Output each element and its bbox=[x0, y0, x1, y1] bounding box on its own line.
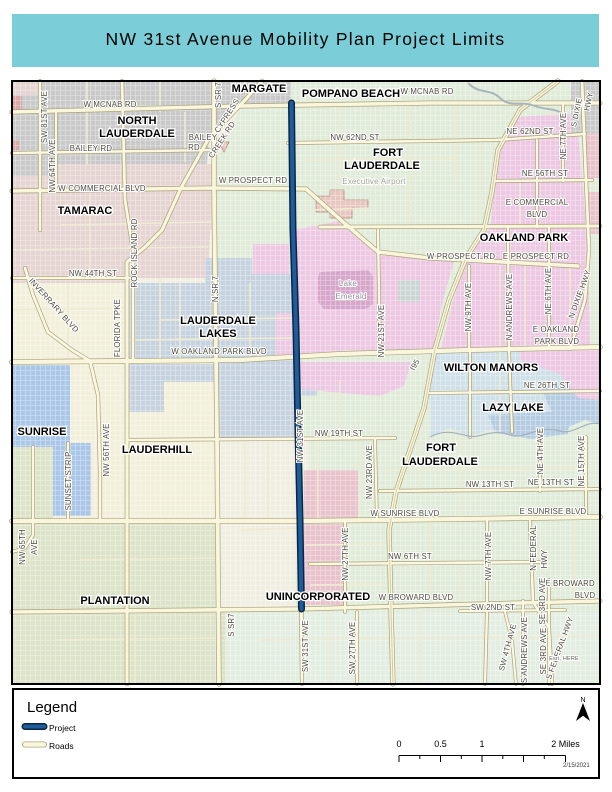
svg-text:NE 6TH AVE: NE 6TH AVE bbox=[544, 268, 553, 315]
svg-text:RD: RD bbox=[188, 143, 200, 152]
svg-text:NW 6TH ST: NW 6TH ST bbox=[388, 552, 432, 561]
svg-text:E OAKLAND: E OAKLAND bbox=[533, 325, 580, 334]
svg-text:NW 21ST AVE: NW 21ST AVE bbox=[377, 305, 386, 358]
svg-text:N FEDERAL: N FEDERAL bbox=[529, 525, 538, 571]
svg-text:NW 7TH AVE: NW 7TH AVE bbox=[484, 532, 493, 581]
svg-text:N ANDREWS AVE: N ANDREWS AVE bbox=[505, 274, 514, 341]
svg-text:0: 0 bbox=[396, 739, 401, 749]
svg-text:NW 56TH AVE: NW 56TH AVE bbox=[102, 423, 111, 476]
svg-text:LAUDERDALE: LAUDERDALE bbox=[99, 128, 175, 140]
svg-text:ROCK ISLAND RD: ROCK ISLAND RD bbox=[130, 218, 139, 287]
svg-text:POMPANO BEACH: POMPANO BEACH bbox=[302, 88, 400, 100]
svg-text:Lake: Lake bbox=[339, 279, 357, 288]
svg-text:E SUNRISE BLVD: E SUNRISE BLVD bbox=[520, 507, 587, 516]
svg-text:E COMMERCIAL: E COMMERCIAL bbox=[506, 198, 569, 207]
svg-text:LAUDERDALE: LAUDERDALE bbox=[402, 456, 478, 468]
svg-text:NW 9TH AVE: NW 9TH AVE bbox=[464, 283, 473, 332]
svg-text:NE 13TH ST: NE 13TH ST bbox=[528, 478, 574, 487]
svg-text:SUNRISE: SUNRISE bbox=[18, 426, 67, 438]
svg-text:N: N bbox=[580, 697, 585, 704]
svg-text:2 Miles: 2 Miles bbox=[551, 739, 580, 749]
svg-text:UNINCORPORATED: UNINCORPORATED bbox=[266, 591, 370, 603]
svg-text:PLANTATION: PLANTATION bbox=[80, 595, 149, 607]
svg-text:AVE: AVE bbox=[30, 539, 39, 555]
svg-text:NW 13TH ST: NW 13TH ST bbox=[466, 480, 514, 489]
svg-text:SW 27TH AVE: SW 27TH AVE bbox=[348, 622, 357, 675]
svg-text:NW 19TH ST: NW 19TH ST bbox=[315, 429, 363, 438]
svg-text:MARGATE: MARGATE bbox=[232, 83, 287, 95]
svg-text:NE 56TH ST: NE 56TH ST bbox=[522, 169, 568, 178]
svg-text:WILTON MANORS: WILTON MANORS bbox=[444, 362, 538, 374]
svg-text:NE 15TH AVE: NE 15TH AVE bbox=[577, 435, 586, 486]
svg-text:W BROWARD BLVD: W BROWARD BLVD bbox=[379, 593, 454, 602]
svg-text:W MCNAB RD: W MCNAB RD bbox=[83, 100, 136, 109]
svg-text:SW 31ST AVE: SW 31ST AVE bbox=[301, 620, 310, 672]
svg-text:S SR 7: S SR 7 bbox=[214, 82, 223, 108]
svg-text:1: 1 bbox=[479, 739, 484, 749]
svg-text:Executive Airport: Executive Airport bbox=[342, 177, 406, 186]
svg-text:HWY: HWY bbox=[540, 549, 549, 568]
svg-text:N SR 7: N SR 7 bbox=[211, 276, 220, 302]
svg-text:W SUNRISE BLVD: W SUNRISE BLVD bbox=[371, 509, 440, 518]
svg-text:OAKLAND PARK: OAKLAND PARK bbox=[480, 232, 568, 244]
svg-text:BLVD: BLVD bbox=[575, 591, 596, 600]
svg-text:SW 81ST AVE: SW 81ST AVE bbox=[40, 91, 49, 143]
svg-text:NW 65TH: NW 65TH bbox=[18, 529, 27, 565]
svg-text:0.5: 0.5 bbox=[434, 739, 447, 749]
svg-text:E BROWARD: E BROWARD bbox=[545, 579, 595, 588]
svg-text:FORT: FORT bbox=[426, 442, 456, 454]
svg-text:LAUDERDALE: LAUDERDALE bbox=[344, 160, 420, 172]
svg-text:NW 31ST AVE: NW 31ST AVE bbox=[296, 410, 305, 463]
svg-text:Esri, HERE: Esri, HERE bbox=[549, 656, 579, 662]
svg-text:W PROSPECT RD: W PROSPECT RD bbox=[219, 176, 287, 185]
svg-text:NW 64TH AVE: NW 64TH AVE bbox=[48, 139, 57, 192]
svg-text:BAILEY RD: BAILEY RD bbox=[70, 144, 113, 153]
svg-text:S SR7: S SR7 bbox=[227, 613, 236, 637]
svg-text:NE 7TH AVE: NE 7TH AVE bbox=[559, 113, 568, 160]
svg-text:E PROSPECT RD: E PROSPECT RD bbox=[503, 252, 569, 261]
svg-text:TAMARAC: TAMARAC bbox=[58, 205, 113, 217]
svg-text:SE 3RD AVE: SE 3RD AVE bbox=[539, 628, 548, 675]
svg-text:BAILEY: BAILEY bbox=[189, 133, 218, 142]
svg-text:Emerald: Emerald bbox=[335, 292, 366, 301]
svg-text:LAZY LAKE: LAZY LAKE bbox=[482, 402, 544, 414]
svg-text:FLORIDA TPKE: FLORIDA TPKE bbox=[113, 299, 122, 357]
svg-text:NE 4TH AVE: NE 4TH AVE bbox=[536, 428, 545, 475]
svg-text:NW 62ND ST: NW 62ND ST bbox=[330, 133, 379, 142]
svg-text:W MCNAB RD: W MCNAB RD bbox=[400, 87, 453, 96]
svg-text:NW 23RD AVE: NW 23RD AVE bbox=[365, 445, 374, 499]
svg-text:NE 62ND ST: NE 62ND ST bbox=[506, 127, 553, 136]
svg-text:S ANDREWS AVE: S ANDREWS AVE bbox=[520, 617, 529, 683]
svg-text:W OAKLAND PARK BLVD: W OAKLAND PARK BLVD bbox=[171, 347, 267, 356]
svg-text:FORT: FORT bbox=[373, 147, 403, 159]
svg-text:W COMMERCIAL BLVD: W COMMERCIAL BLVD bbox=[58, 184, 146, 193]
svg-text:NW 44TH ST: NW 44TH ST bbox=[69, 269, 117, 278]
svg-text:LAKES: LAKES bbox=[199, 328, 236, 340]
svg-text:W PROSPECT RD: W PROSPECT RD bbox=[427, 252, 495, 261]
svg-text:SE 3RD AVE: SE 3RD AVE bbox=[538, 578, 547, 625]
svg-text:SUNSET STRIP: SUNSET STRIP bbox=[64, 451, 73, 510]
svg-text:NE 26TH ST: NE 26TH ST bbox=[524, 381, 570, 390]
svg-text:BLVD: BLVD bbox=[527, 210, 548, 219]
svg-text:LAUDERHILL: LAUDERHILL bbox=[122, 444, 193, 456]
svg-text:LAUDERDALE: LAUDERDALE bbox=[180, 315, 256, 327]
svg-text:NW 27TH AVE: NW 27TH AVE bbox=[341, 527, 350, 580]
svg-text:SW 2ND ST: SW 2ND ST bbox=[471, 603, 515, 612]
svg-text:PARK BLVD: PARK BLVD bbox=[535, 337, 580, 346]
svg-text:NORTH: NORTH bbox=[117, 115, 156, 127]
